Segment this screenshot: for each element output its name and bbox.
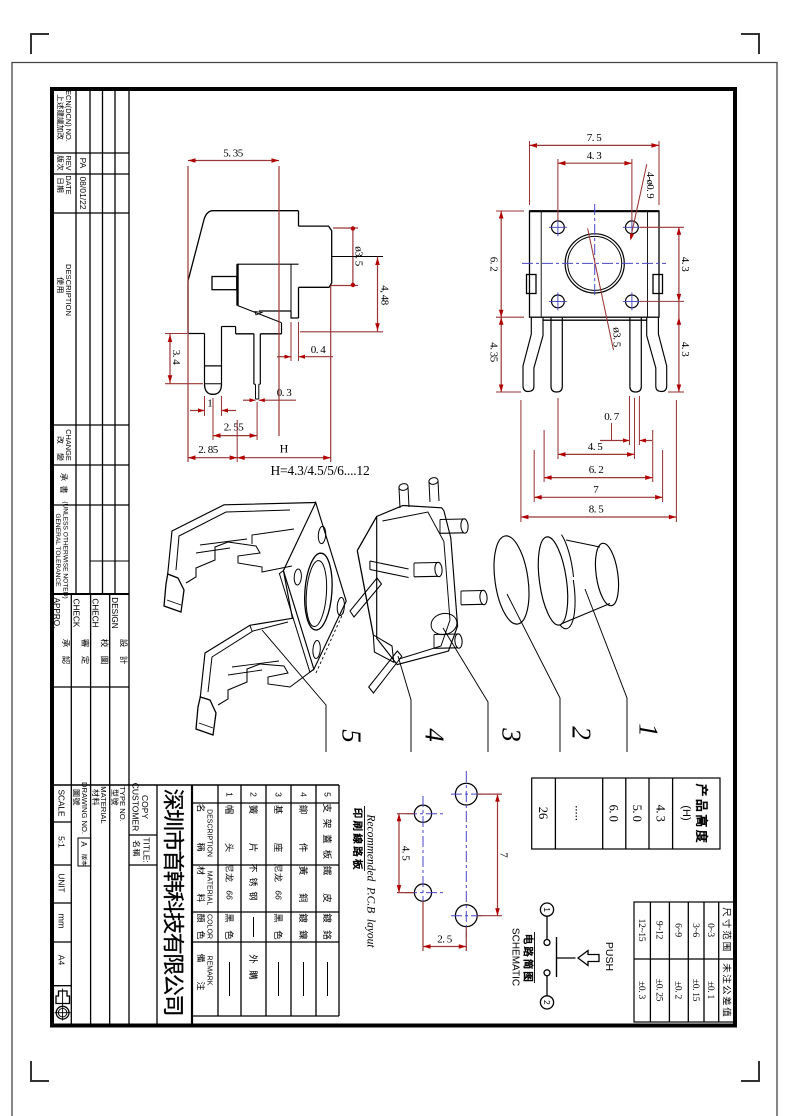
svg-text:1: 1	[207, 397, 213, 409]
svg-text:COLOR: COLOR	[206, 914, 213, 939]
svg-text:MATERIAL: MATERIAL	[99, 786, 108, 823]
svg-text:0. 4: 0. 4	[311, 344, 327, 356]
svg-text:H=4.3/4.5/5/6....12: H=4.3/4.5/5/6....12	[270, 463, 369, 478]
svg-text:9~12: 9~12	[654, 921, 664, 940]
svg-text:2: 2	[567, 726, 597, 740]
svg-text:5: 5	[337, 729, 367, 743]
svg-text:CHECK: CHECK	[72, 599, 81, 628]
svg-text:UNIT: UNIT	[57, 873, 66, 892]
svg-text:DESIGN: DESIGN	[110, 597, 119, 628]
svg-text:0. 7: 0. 7	[604, 411, 620, 423]
svg-text:±0. 25: ±0. 25	[654, 979, 664, 1002]
svg-text:4. 5: 4. 5	[400, 846, 412, 862]
svg-text:mm: mm	[56, 914, 66, 929]
svg-text:±0. 1: ±0. 1	[705, 981, 715, 1000]
svg-text:PUSH: PUSH	[603, 942, 615, 971]
svg-text:SCALE: SCALE	[57, 790, 66, 817]
svg-text:7. 5: 7. 5	[587, 132, 603, 144]
svg-text:08/01/22: 08/01/22	[78, 176, 88, 209]
svg-text:0~3: 0~3	[705, 923, 715, 937]
svg-text:.....: .....	[573, 805, 587, 821]
svg-text:TITLE:: TITLE:	[142, 837, 152, 863]
svg-text:4. 5: 4. 5	[588, 441, 604, 453]
svg-text:3: 3	[497, 727, 527, 742]
svg-text:MATERIAL: MATERIAL	[206, 871, 213, 906]
svg-text:APPRO.: APPRO.	[52, 598, 61, 629]
svg-text:4. 3: 4. 3	[654, 805, 668, 822]
svg-text:2: 2	[542, 1000, 552, 1005]
svg-text:5. 0: 5. 0	[630, 805, 644, 822]
svg-text:CHANGE: CHANGE	[64, 429, 73, 461]
svg-text:A: A	[79, 841, 88, 847]
svg-text:DRAWING NO.: DRAWING NO.	[80, 782, 89, 834]
svg-text:COPY: COPY	[140, 795, 150, 819]
svg-text:Recommended P.C.B layout: Recommended P.C.B layout	[365, 813, 377, 948]
svg-text:DATE: DATE	[64, 175, 73, 194]
svg-text:4. 3: 4. 3	[587, 150, 603, 162]
svg-text:26: 26	[536, 807, 550, 820]
svg-text:1: 1	[634, 723, 664, 737]
svg-text:SCHEMATIC: SCHEMATIC	[510, 928, 521, 986]
svg-text:0. 3: 0. 3	[277, 387, 293, 399]
svg-text:PA: PA	[78, 158, 88, 169]
svg-text:±0. 2: ±0. 2	[673, 981, 683, 1000]
svg-text:5: 5	[323, 792, 333, 797]
svg-text:TYPE NO.: TYPE NO.	[118, 786, 127, 821]
svg-text:2. 55: 2. 55	[224, 421, 245, 433]
svg-text:4. 35: 4. 35	[488, 342, 500, 363]
svg-text:12~15: 12~15	[636, 919, 646, 942]
svg-text:8. 5: 8. 5	[589, 503, 605, 515]
svg-text:1: 1	[225, 792, 235, 797]
svg-text:ø3. 5: ø3. 5	[611, 327, 623, 348]
svg-text:4: 4	[420, 728, 450, 742]
svg-text:6. 2: 6. 2	[488, 257, 500, 272]
svg-text:2. 85: 2. 85	[198, 444, 219, 456]
svg-text:4: 4	[299, 792, 309, 797]
svg-text:2. 5: 2. 5	[437, 933, 453, 945]
svg-text:2: 2	[249, 792, 259, 797]
svg-text:CUSTOMER: CUSTOMER	[131, 783, 141, 832]
svg-text:REV: REV	[64, 155, 73, 170]
svg-text:DESCRIPTION: DESCRIPTION	[206, 809, 213, 857]
svg-text:GENERAL TOLERANCE: GENERAL TOLERANCE	[54, 513, 61, 587]
svg-text:4. 3: 4. 3	[679, 257, 691, 273]
svg-text:4, 48: 4, 48	[379, 285, 391, 306]
svg-text:A4: A4	[57, 955, 67, 966]
svg-text:CHECH: CHECH	[91, 598, 100, 627]
svg-text:3: 3	[274, 792, 284, 797]
svg-text:66: 66	[225, 890, 235, 900]
svg-text:ECN(DCN) NO.: ECN(DCN) NO.	[64, 90, 73, 142]
svg-text:3. 4: 3. 4	[170, 350, 182, 366]
svg-text:4. 3: 4. 3	[679, 342, 691, 358]
svg-text:6~9: 6~9	[673, 923, 683, 937]
svg-text:(H): (H)	[680, 805, 692, 820]
svg-text:66: 66	[274, 890, 284, 900]
svg-text:7: 7	[593, 484, 599, 496]
svg-text:±0. 3: ±0. 3	[636, 981, 646, 1000]
svg-text:(UNLESS OTHERWISE NOTED): (UNLESS OTHERWISE NOTED)	[62, 501, 69, 598]
svg-text:DESCRIPTION: DESCRIPTION	[64, 264, 73, 316]
svg-text:5. 35: 5. 35	[223, 147, 244, 159]
svg-text:±0. 15: ±0. 15	[690, 979, 700, 1002]
svg-text:4-ø0. 9: 4-ø0. 9	[644, 172, 655, 198]
svg-text:7: 7	[498, 852, 510, 858]
svg-text:6. 2: 6. 2	[589, 464, 604, 476]
svg-text:3~6: 3~6	[690, 923, 700, 937]
svg-text:REMARK: REMARK	[206, 956, 213, 986]
svg-text:6. 0: 6. 0	[607, 805, 621, 822]
svg-text:1: 1	[542, 907, 552, 912]
svg-text:H: H	[280, 442, 289, 456]
svg-text:5:1: 5:1	[57, 836, 67, 848]
